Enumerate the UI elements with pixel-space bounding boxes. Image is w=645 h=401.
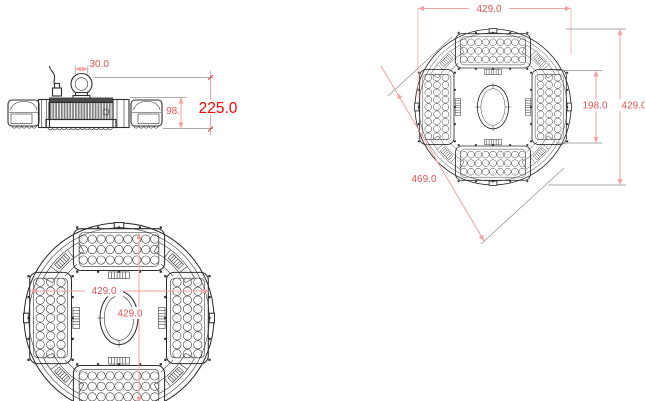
dim-label-hook-width: 30.0 [90, 59, 110, 70]
lens-plate [46, 120, 116, 128]
dim-label-center-span: 198.0 [582, 101, 607, 112]
right-wing-module [131, 100, 162, 126]
heatsink-top-cap [49, 98, 113, 103]
heatsink-fins [51, 103, 111, 119]
dim-label-width-bottom-view: 429.0 [91, 286, 116, 297]
left-arm-bracket [39, 100, 50, 128]
right-arm-bracket [113, 100, 129, 128]
technical-drawing-canvas: 30.0 98. 225.0 429.0 198.0 429.0 469.0 4… [0, 0, 645, 401]
dim-label-height-bottom-view: 429.0 [117, 309, 142, 320]
dim-label-height-right: 429.0 [621, 101, 645, 112]
dim-label-width-top: 429.0 [476, 4, 501, 15]
bottom-view-top-right [415, 29, 572, 186]
eyebolt-ring-inner [75, 78, 88, 91]
cable-gland-top [55, 84, 60, 89]
technical-drawing-page: 30.0 98. 225.0 429.0 198.0 429.0 469.0 4… [0, 0, 645, 401]
dim-label-diagonal: 469.0 [411, 174, 436, 185]
left-wing-module [8, 100, 39, 126]
cable-gland [53, 88, 62, 96]
dim-label-body-height: 98. [166, 106, 180, 117]
eyebolt-ring [71, 74, 92, 95]
dim-label-overall-height: 225.0 [199, 100, 238, 117]
side-view [8, 66, 162, 130]
